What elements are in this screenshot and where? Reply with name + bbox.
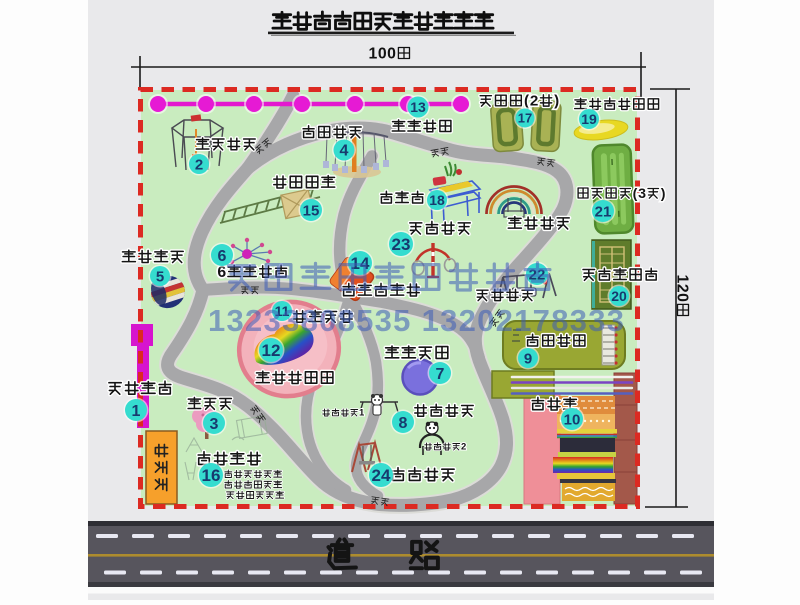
svg-text:12: 12	[262, 341, 281, 360]
svg-text:8: 8	[399, 415, 408, 432]
svg-text:13233808535 13202178333: 13233808535 13202178333	[208, 303, 624, 338]
svg-text:24: 24	[372, 466, 391, 485]
svg-text:21: 21	[595, 203, 612, 220]
svg-text:15: 15	[303, 202, 320, 219]
svg-text:7: 7	[436, 366, 445, 383]
svg-text:10: 10	[564, 411, 581, 428]
svg-text:1: 1	[132, 403, 141, 420]
svg-text:23: 23	[392, 235, 411, 254]
svg-text:(: (	[633, 186, 638, 202]
svg-text:18: 18	[429, 192, 445, 208]
svg-text:1: 1	[359, 408, 365, 419]
svg-text:2: 2	[461, 442, 466, 453]
svg-text:2: 2	[195, 156, 203, 173]
svg-text:17: 17	[518, 111, 532, 126]
svg-text:3: 3	[638, 186, 646, 202]
svg-text:): )	[661, 186, 666, 202]
svg-text:3: 3	[210, 416, 219, 433]
svg-text:1: 1	[369, 45, 378, 62]
svg-text:16: 16	[202, 466, 221, 485]
svg-text:9: 9	[524, 350, 532, 367]
svg-text:5: 5	[156, 268, 164, 285]
svg-text:2: 2	[674, 284, 691, 293]
svg-text:0: 0	[387, 45, 396, 62]
svg-text:2: 2	[530, 93, 538, 110]
svg-text:): )	[554, 93, 559, 110]
svg-text:19: 19	[581, 111, 597, 127]
svg-text:6: 6	[218, 248, 227, 265]
svg-text:13: 13	[410, 99, 426, 115]
svg-text:20: 20	[611, 288, 627, 304]
svg-text:4: 4	[340, 143, 349, 160]
svg-text:0: 0	[674, 293, 691, 302]
svg-text:0: 0	[378, 45, 387, 62]
svg-text:1: 1	[674, 275, 691, 284]
